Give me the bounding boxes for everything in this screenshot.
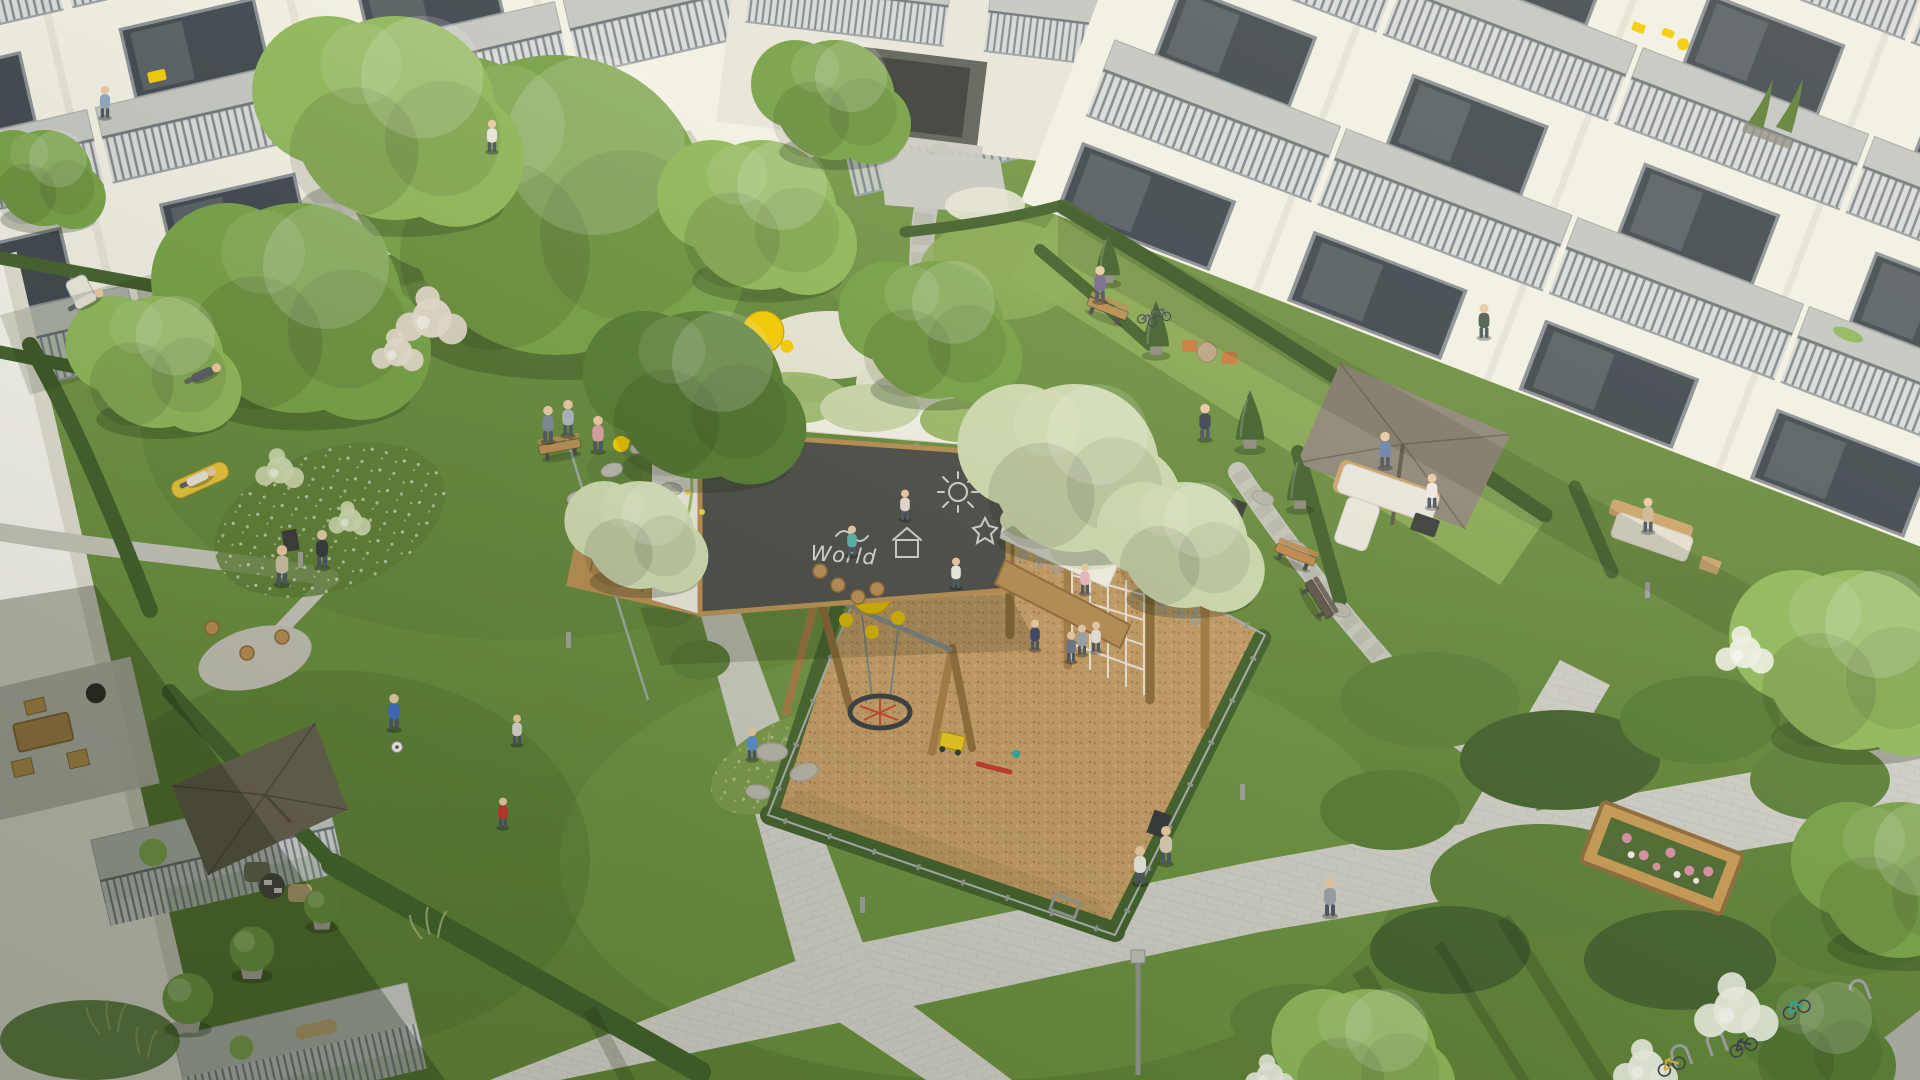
- courtyard-render: World: [0, 0, 1920, 1080]
- scene-svg: World: [0, 0, 1920, 1080]
- shade-grade: [0, 0, 1920, 1080]
